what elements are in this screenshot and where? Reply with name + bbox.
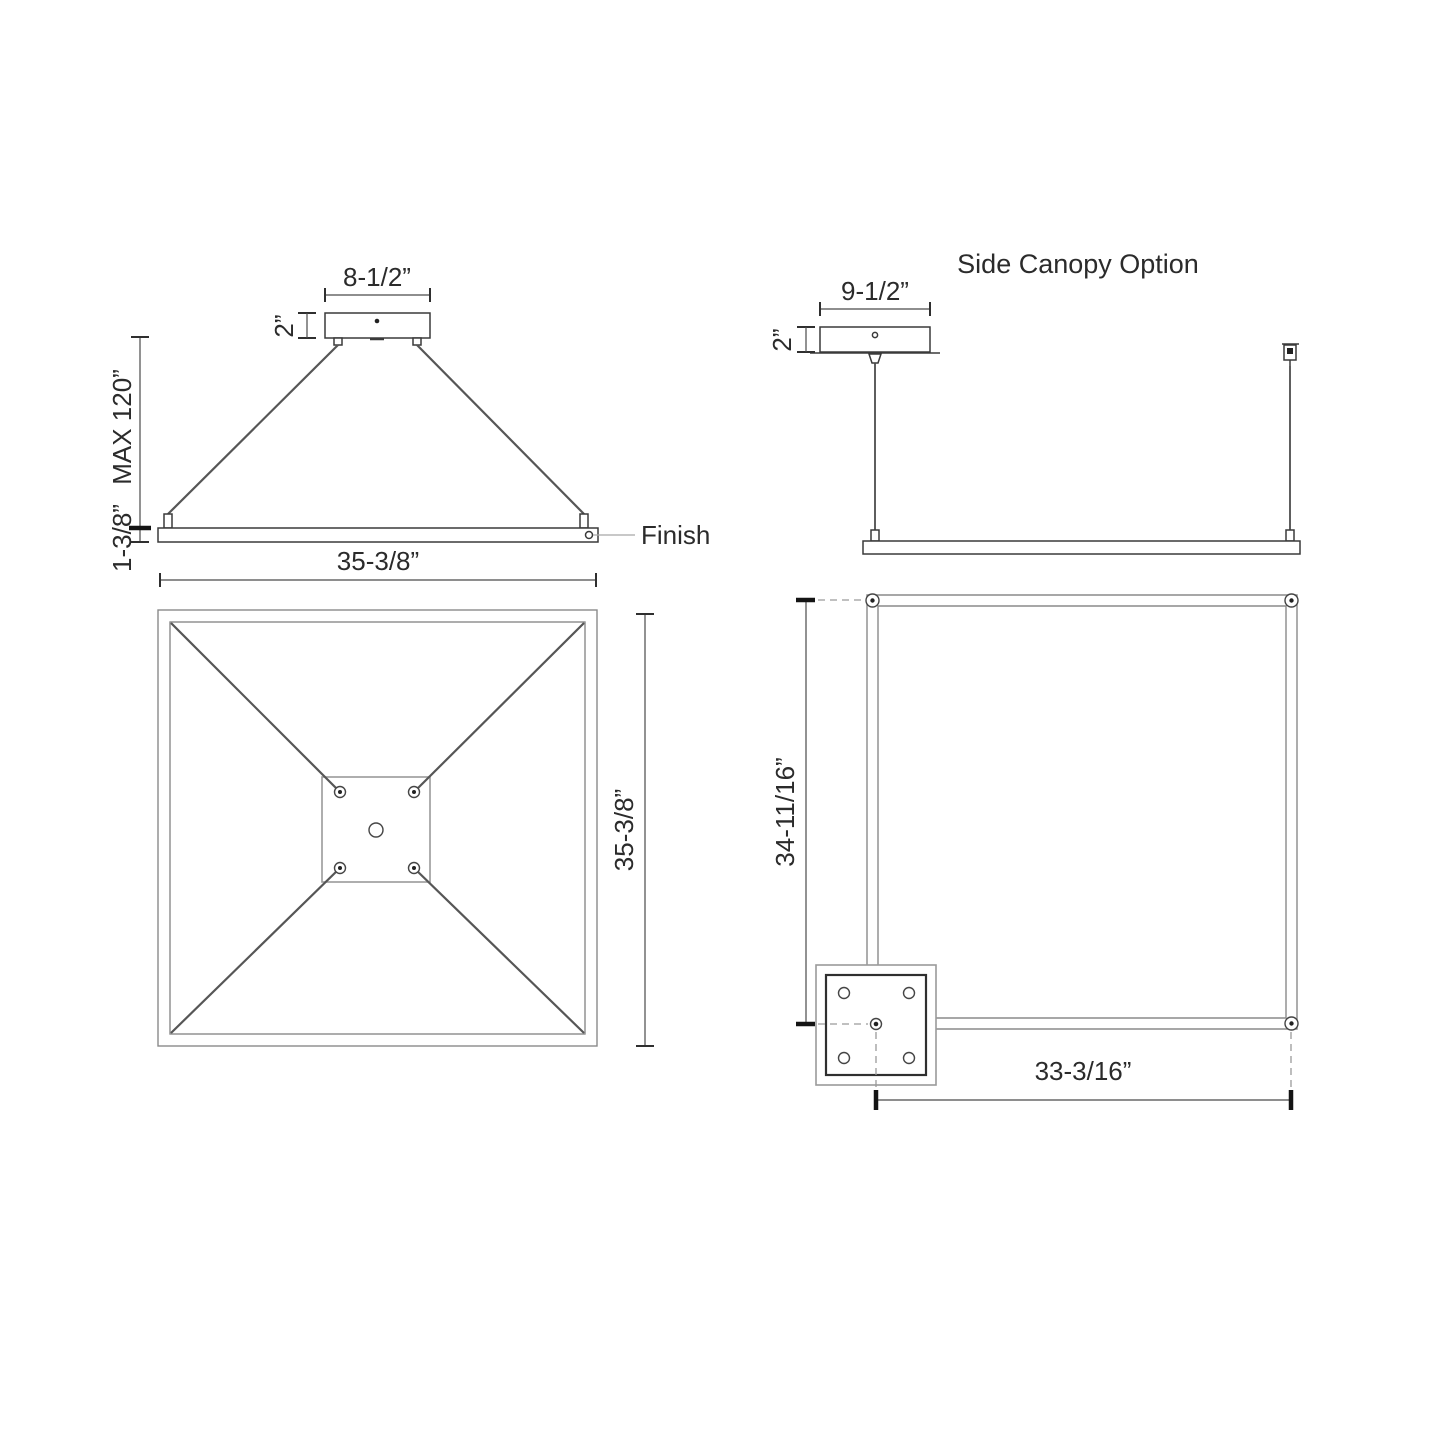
canopy-screw-hole [839,1053,850,1064]
corner-suspension-dot [1289,1021,1293,1025]
canopy-center-hole [369,823,383,837]
canopy-width-dimension-label: 9-1/2” [841,276,909,306]
fixture-thickness-dimension-label: 1-3/8” [107,504,137,572]
plan-view: 35-3/8” [158,610,654,1046]
canopy-height-dimension-label: 2” [767,328,797,351]
cable-diagonal [414,623,584,792]
finish-callout-point [586,532,593,539]
cable-anchor-dot [338,790,342,794]
fixture-width-dimension-label: 35-3/8” [337,546,419,576]
canopy-center-hole [375,319,380,324]
side-canopy-plan-view: 34-11/16” 33-3/16” [770,594,1298,1110]
vertical-center-dimension-label: 34-11/16” [770,757,800,866]
suspension-cable-right [417,345,584,514]
canopy-width-dimension-label: 8-1/2” [343,262,411,292]
front-elevation-view: 8-1/2” 2” MAX 120” 1-3/8” Finish [107,262,710,587]
canopy-center-dot [874,1022,879,1027]
corner-suspension-dot [870,598,874,602]
fixture-frame-inner [878,606,1286,1018]
cable-diagonal [171,868,340,1033]
dimension-drawing-svg: 8-1/2” 2” MAX 120” 1-3/8” Finish [0,0,1445,1445]
canopy-height-dimension-label: 2” [269,314,299,337]
canopy-cable-gripper [334,338,342,345]
ceiling-mount-detail [1287,348,1293,354]
canopy-screw-hole [904,988,915,999]
canopy-screw-hole [904,1053,915,1064]
fixture-bar [863,541,1300,554]
max-suspension-dimension-label: MAX 120” [107,369,137,485]
cable-diagonal [414,868,584,1033]
side-canopy-option-title: Side Canopy Option [957,249,1199,279]
cable-anchor-dot [412,866,416,870]
cable-anchor-dot [412,790,416,794]
corner-suspension-dot [1289,598,1293,602]
spec-sheet-drawing: 8-1/2” 2” MAX 120” 1-3/8” Finish [0,0,1445,1445]
bar-cable-gripper [871,530,879,541]
suspension-cable-left [168,345,338,514]
canopy-center-hole [872,332,877,337]
canopy-outline [325,313,430,338]
side-canopy-elevation-view: Side Canopy Option 9-1/2” 2” [767,249,1300,554]
fixture-depth-dimension-label: 35-3/8” [609,789,639,871]
horizontal-center-dimension-label: 33-3/16” [1035,1056,1132,1086]
bar-cable-gripper [164,514,172,528]
side-canopy-outline [820,327,930,352]
cable-anchor-dot [338,866,342,870]
finish-label: Finish [641,520,710,550]
cable-connector [869,354,881,363]
cable-diagonal [171,623,340,792]
canopy-cable-gripper [413,338,421,345]
canopy-screw-hole [839,988,850,999]
fixture-frame-outer [867,595,1297,1029]
fixture-bar [158,528,598,542]
bar-cable-gripper [1286,530,1294,541]
bar-cable-gripper [580,514,588,528]
